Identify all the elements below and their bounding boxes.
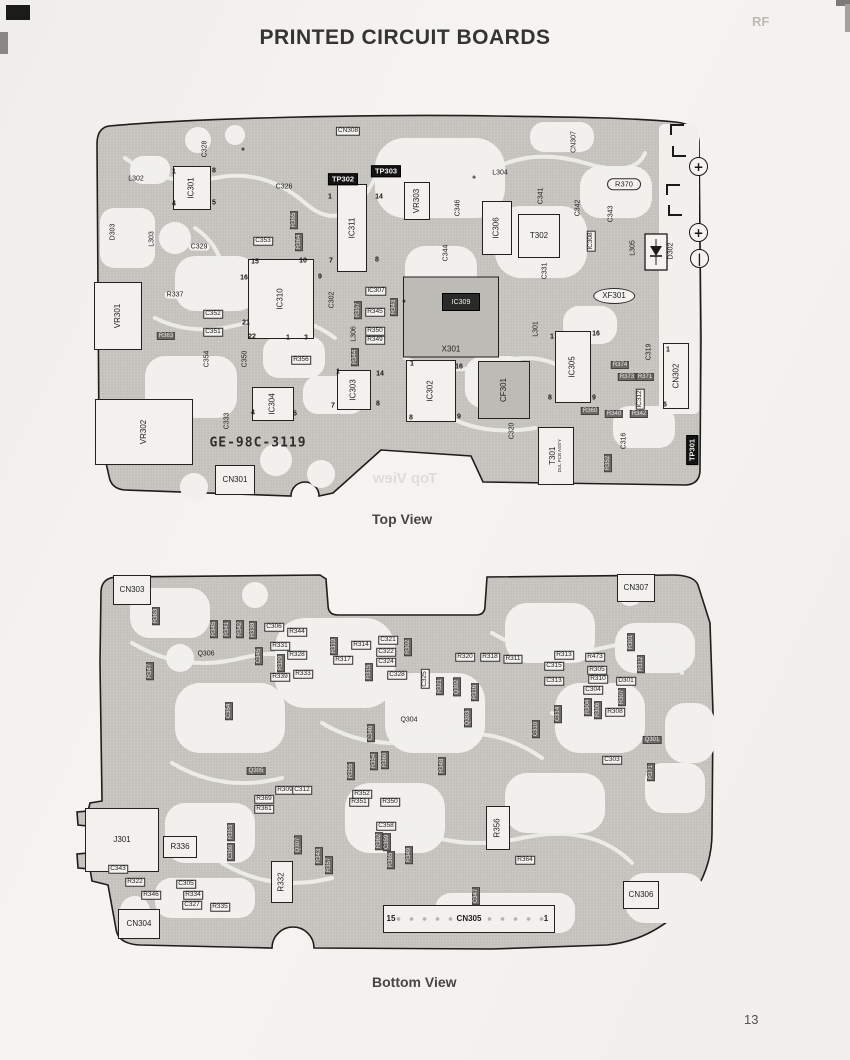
page-number: 13 bbox=[744, 1012, 758, 1027]
diode-symbol bbox=[644, 233, 668, 271]
bottom-view-caption: Bottom View bbox=[372, 974, 457, 990]
ghost-text: Top View bbox=[340, 470, 470, 487]
corner-bracket bbox=[670, 124, 684, 135]
corner-marking: RF bbox=[752, 14, 769, 29]
top-view-caption: Top View bbox=[372, 511, 432, 527]
corner-bracket bbox=[666, 184, 680, 195]
scan-artifact bbox=[845, 4, 850, 32]
scan-artifact bbox=[0, 32, 8, 54]
screw-icon: + bbox=[689, 223, 708, 242]
pcb-top-view-outline bbox=[75, 108, 710, 505]
screw-icon: + bbox=[689, 157, 708, 176]
corner-bracket bbox=[668, 205, 682, 216]
scan-artifact bbox=[6, 5, 30, 20]
pcb-bottom-view-outline bbox=[72, 563, 740, 955]
manual-page: RF PRINTED CIRCUIT BOARDS bbox=[0, 0, 850, 1060]
page-title: PRINTED CIRCUIT BOARDS bbox=[185, 26, 625, 50]
corner-bracket bbox=[672, 146, 686, 157]
screw-icon: | bbox=[690, 249, 709, 268]
